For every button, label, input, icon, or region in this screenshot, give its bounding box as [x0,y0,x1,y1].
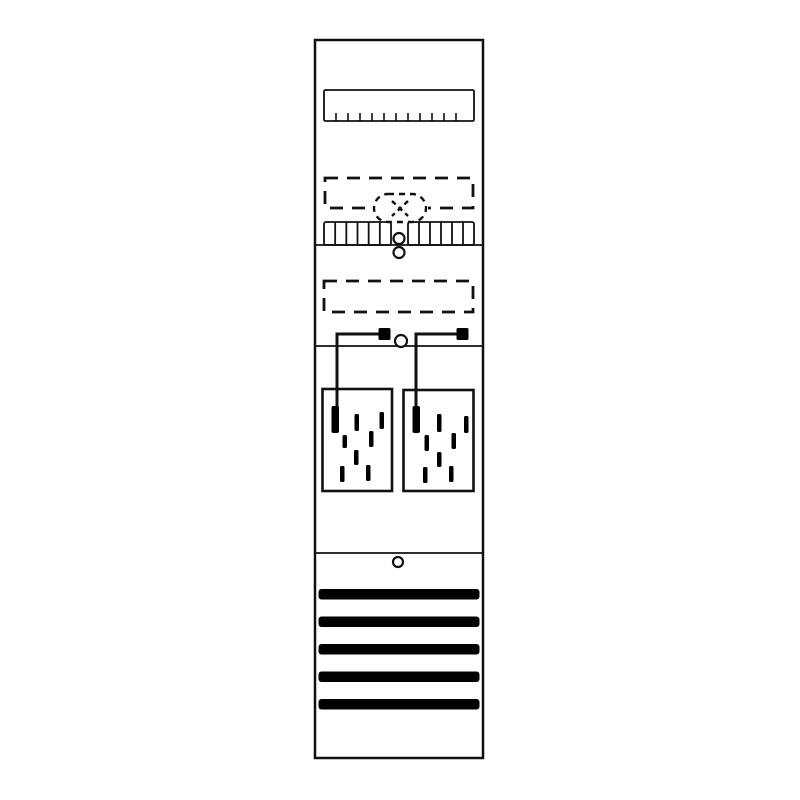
meter-dash-mark [425,435,430,451]
meter-dash-mark [366,465,371,481]
meter-dash-mark [380,412,385,429]
vent-slot [319,699,480,710]
meter-dash-mark [437,414,442,432]
meter-dash-mark [464,416,469,433]
screw-hole [394,247,405,258]
screw-hole [395,335,407,347]
vent-slot [319,589,480,600]
wire-connector [457,328,469,340]
meter-dash-mark [354,450,359,465]
vent-slot [319,644,480,655]
meter-dash-mark [449,466,454,482]
screw-hole [393,557,403,567]
meter-dash-mark [369,431,374,447]
wire-terminal [413,406,421,433]
vent-slot [319,617,480,628]
meter-panel-diagram-page [0,0,800,800]
meter-dash-mark [355,414,360,431]
meter-dash-mark [340,466,345,482]
meter-dash-mark [437,452,442,467]
wire-terminal [332,406,340,433]
meter-dash-mark [423,467,428,483]
wire-connector [379,328,391,340]
meter-dash-mark [452,433,457,449]
vent-slot [319,672,480,683]
screw-hole [394,233,405,244]
meter-dash-mark [343,435,348,448]
meter-panel-diagram [0,0,800,800]
